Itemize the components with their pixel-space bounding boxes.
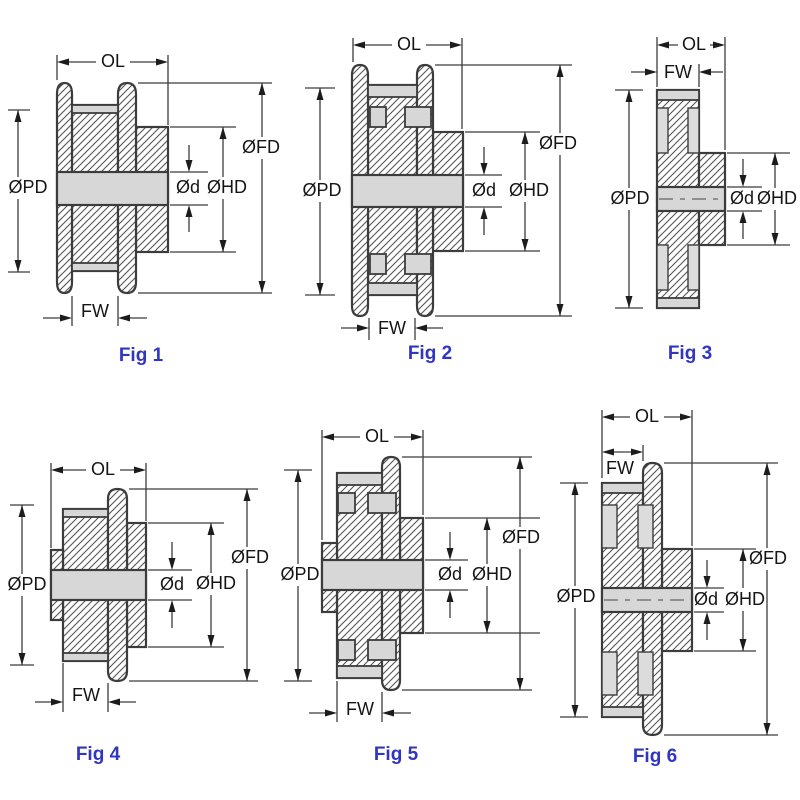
belt-face-band xyxy=(72,263,118,271)
dim-label-pd: ØPD xyxy=(280,564,319,584)
tooth-groove-strip xyxy=(638,652,653,695)
set-screw-hole xyxy=(338,640,355,660)
dim-label-d: Ød xyxy=(160,574,184,594)
tooth-groove-strip xyxy=(638,505,653,548)
dim-label-d: Ød xyxy=(438,564,462,584)
set-screw-hole xyxy=(368,493,396,513)
dim-label-pd: ØPD xyxy=(7,574,46,594)
figure-4: OL FW ØPD Ød ØHD ØFD Fig 4 xyxy=(7,459,269,765)
figure-3: OL FW ØPD Ød ØHD Fig 3 xyxy=(610,34,797,364)
dim-label-fw: FW xyxy=(378,318,406,338)
face-cap-band xyxy=(657,298,699,308)
belt-face-band xyxy=(368,85,417,97)
belt-face-band xyxy=(72,105,118,113)
dim-label-fd: ØFD xyxy=(749,548,787,568)
dim-label-fd: ØFD xyxy=(231,547,269,567)
dim-label-hd: ØHD xyxy=(509,180,549,200)
belt-face-band xyxy=(63,653,108,661)
set-screw-hole xyxy=(405,254,431,274)
belt-face-band xyxy=(337,473,382,485)
figure-2: OL FW ØPD Ød ØHD ØFD Fig 2 xyxy=(302,34,577,364)
bore xyxy=(352,175,463,207)
dim-label-fw: FW xyxy=(81,301,109,321)
bore xyxy=(51,570,146,600)
figure-caption: Fig 6 xyxy=(633,746,677,767)
dim-label-hd: ØHD xyxy=(207,177,247,197)
dim-label-pd: ØPD xyxy=(8,177,47,197)
dim-label-d: Ød xyxy=(176,177,200,197)
face-cap-band xyxy=(602,483,643,493)
set-screw-hole xyxy=(370,107,386,127)
dim-label-hd: ØHD xyxy=(725,589,765,609)
dim-fd xyxy=(129,489,258,681)
dim-label-fd: ØFD xyxy=(242,137,280,157)
dim-label-d: Ød xyxy=(730,188,754,208)
figure-caption: Fig 1 xyxy=(119,345,164,366)
dim-label-fw: FW xyxy=(346,699,374,719)
dim-label-fw: FW xyxy=(606,458,634,478)
figure-5: OL FW ØPD Ød ØHD ØFD Fig 5 xyxy=(280,426,540,765)
figure-caption: Fig 3 xyxy=(668,343,712,364)
set-screw-hole xyxy=(405,107,431,127)
set-screw-hole xyxy=(338,493,355,513)
dim-label-d: Ød xyxy=(694,589,718,609)
dim-label-hd: ØHD xyxy=(472,564,512,584)
figure-caption: Fig 5 xyxy=(374,744,419,765)
dim-label-pd: ØPD xyxy=(556,586,595,606)
dim-label-ol: OL xyxy=(365,426,389,446)
dim-label-ol: OL xyxy=(101,51,125,71)
dim-label-ol: OL xyxy=(682,34,706,54)
figure-6: OL FW ØPD Ød ØHD ØFD Fig 6 xyxy=(556,406,787,767)
face-cap-band xyxy=(602,707,643,717)
face-cap-band xyxy=(657,90,699,100)
figure-caption: Fig 2 xyxy=(408,343,452,364)
dim-label-ol: OL xyxy=(91,459,115,479)
dim-label-hd: ØHD xyxy=(196,573,236,593)
belt-face-band xyxy=(368,283,417,295)
set-screw-hole xyxy=(370,254,386,274)
bore xyxy=(322,560,423,590)
dim-label-fd: ØFD xyxy=(502,527,540,547)
tooth-groove-strip xyxy=(602,652,617,695)
drawing-sheet: OL FW ØPD Ød ØHD ØFD Fig 1 OL FW ØPD Ød … xyxy=(0,0,800,800)
dim-label-fw: FW xyxy=(664,62,692,82)
dim-label-pd: ØPD xyxy=(302,180,341,200)
belt-face-band xyxy=(63,509,108,517)
belt-face-band xyxy=(337,666,382,678)
tooth-groove-strip xyxy=(657,108,668,153)
tooth-groove-strip xyxy=(688,108,699,153)
bore xyxy=(57,172,168,205)
figure-caption: Fig 4 xyxy=(76,744,121,765)
dim-label-d: Ød xyxy=(472,180,496,200)
pulley-figures-svg: OL FW ØPD Ød ØHD ØFD Fig 1 OL FW ØPD Ød … xyxy=(0,0,800,800)
figure-1: OL FW ØPD Ød ØHD ØFD Fig 1 xyxy=(8,51,280,366)
dim-label-ol: OL xyxy=(635,406,659,426)
dim-label-ol: OL xyxy=(397,34,421,54)
tooth-groove-strip xyxy=(602,505,617,548)
dim-label-fw: FW xyxy=(72,685,100,705)
tooth-groove-strip xyxy=(688,245,699,290)
set-screw-hole xyxy=(368,640,396,660)
dim-label-hd: ØHD xyxy=(757,188,797,208)
dim-label-pd: ØPD xyxy=(610,188,649,208)
dim-label-fd: ØFD xyxy=(539,133,577,153)
tooth-groove-strip xyxy=(657,245,668,290)
